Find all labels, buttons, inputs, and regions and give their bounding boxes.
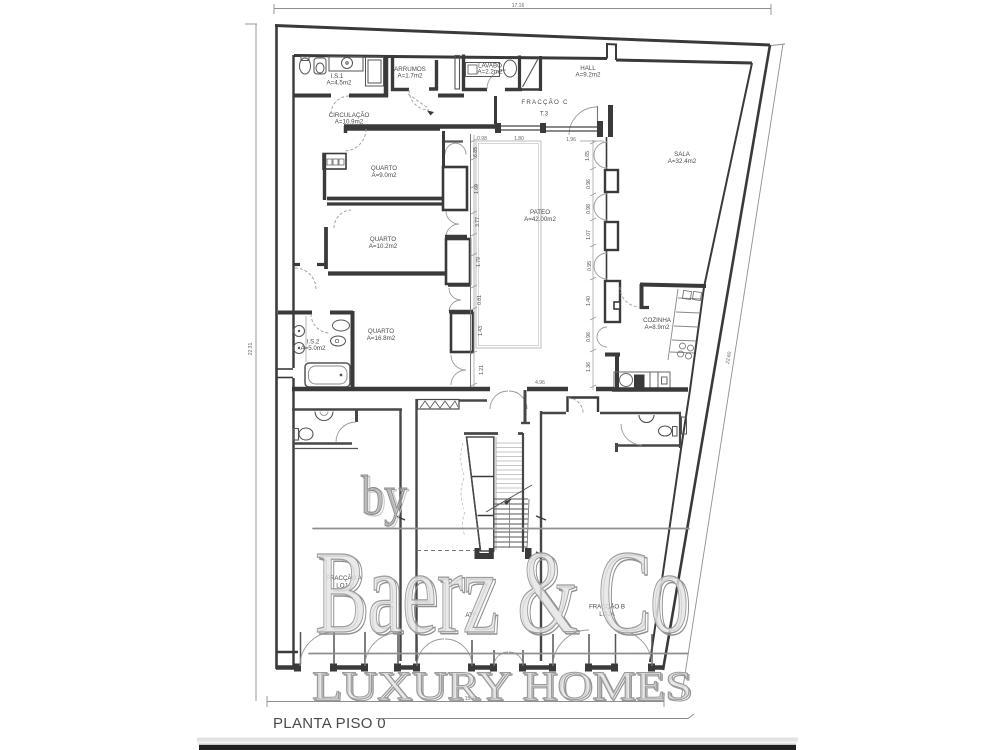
svg-text:A=16.8m2: A=16.8m2: [367, 335, 396, 342]
svg-text:1.40: 1.40: [586, 296, 592, 306]
svg-text:QUARTO: QUARTO: [370, 236, 396, 243]
svg-text:6.85: 6.85: [473, 147, 479, 157]
svg-text:1.36: 1.36: [586, 362, 592, 372]
svg-text:0.98: 0.98: [477, 136, 487, 142]
svg-text:PLANTA PISO 0: PLANTA PISO 0: [273, 715, 386, 732]
svg-text:1.43: 1.43: [478, 326, 484, 336]
svg-text:22.31: 22.31: [248, 343, 254, 356]
svg-text:17.16: 17.16: [512, 3, 525, 9]
svg-text:1.96: 1.96: [566, 137, 576, 143]
svg-text:0.81: 0.81: [477, 295, 483, 305]
svg-text:A=8.9m2: A=8.9m2: [645, 324, 670, 331]
svg-text:0.96: 0.96: [586, 179, 592, 189]
svg-text:A=5.0m2: A=5.0m2: [301, 345, 326, 352]
svg-text:PATEO: PATEO: [530, 209, 550, 216]
svg-text:1.21: 1.21: [479, 365, 485, 375]
svg-text:0.96: 0.96: [586, 332, 592, 342]
svg-text:0.95: 0.95: [587, 261, 593, 271]
svg-text:T.3: T.3: [540, 111, 549, 118]
svg-text:3.77: 3.77: [475, 217, 481, 227]
svg-text:SALA: SALA: [674, 151, 691, 158]
svg-text:FRACÇÃO C: FRACÇÃO C: [521, 99, 568, 106]
svg-text:1.60: 1.60: [474, 184, 480, 194]
svg-text:1.79: 1.79: [476, 257, 482, 267]
svg-text:A=32.4m2: A=32.4m2: [668, 158, 697, 165]
svg-text:COZINHA: COZINHA: [643, 317, 672, 324]
svg-text:Baerz & Co: Baerz & Co: [315, 526, 689, 658]
svg-text:1.65: 1.65: [585, 151, 591, 161]
svg-text:0.98: 0.98: [586, 204, 592, 214]
svg-text:A=4.5m2: A=4.5m2: [327, 80, 352, 87]
svg-text:by: by: [361, 465, 407, 527]
svg-text:LUXURY HOMES: LUXURY HOMES: [312, 663, 692, 708]
svg-text:A=1.7m2: A=1.7m2: [398, 73, 423, 80]
svg-text:QUARTO: QUARTO: [368, 328, 394, 335]
svg-text:A=9.2m2: A=9.2m2: [576, 72, 601, 79]
svg-text:A=42.00m2: A=42.00m2: [524, 216, 556, 223]
svg-text:QUARTO: QUARTO: [371, 165, 397, 172]
svg-text:A=10.2m2: A=10.2m2: [369, 243, 398, 250]
svg-text:1.07: 1.07: [586, 230, 592, 240]
svg-text:1.80: 1.80: [514, 136, 524, 142]
svg-text:A=2.2m2: A=2.2m2: [478, 69, 503, 76]
svg-text:A=9.0m2: A=9.0m2: [372, 172, 397, 179]
svg-text:4.96: 4.96: [535, 380, 545, 386]
